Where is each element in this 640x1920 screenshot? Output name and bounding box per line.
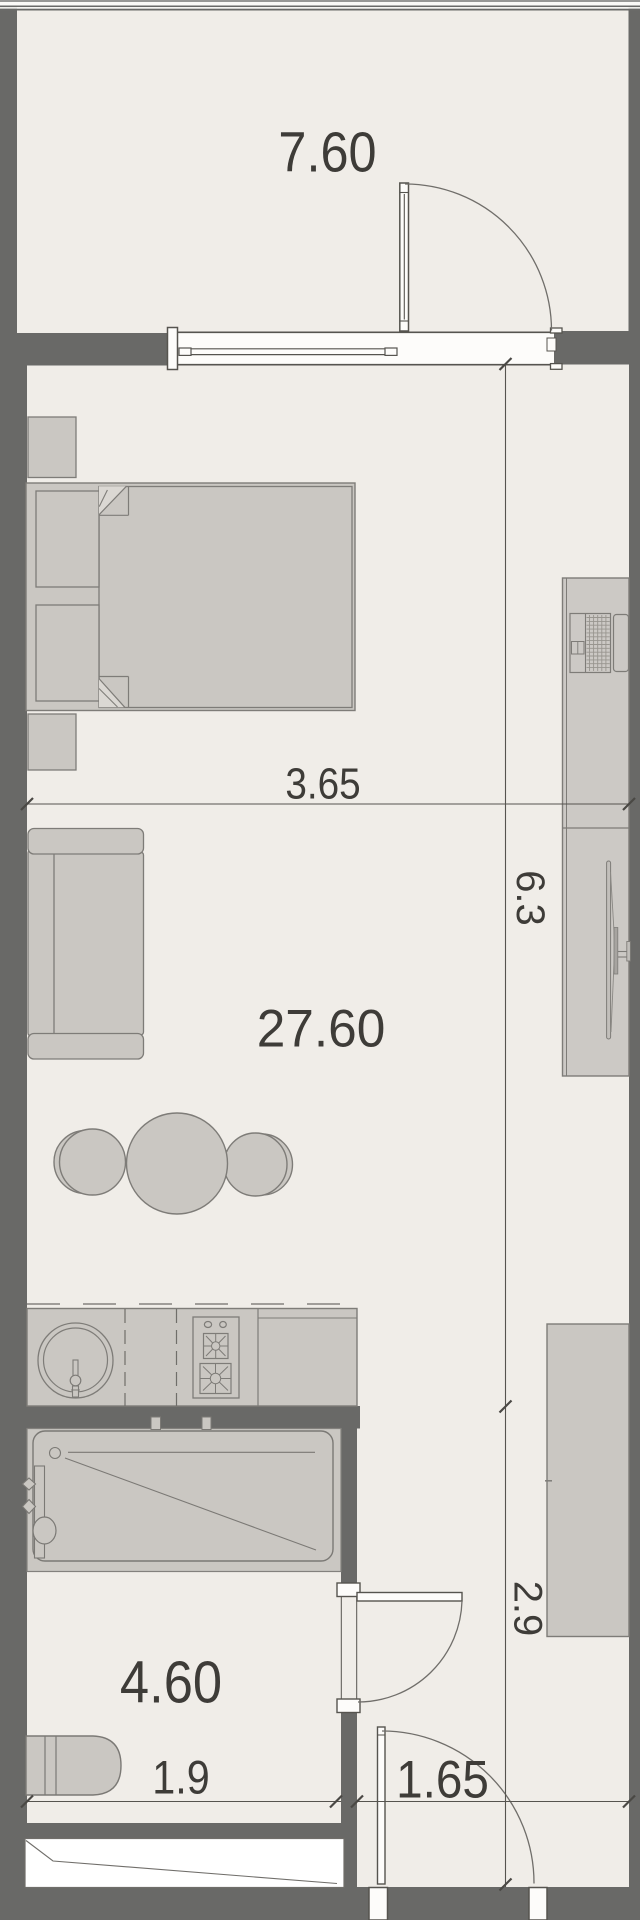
svg-text:1.9: 1.9 [152,1752,209,1804]
svg-text:4.60: 4.60 [120,1649,222,1716]
svg-text:6.3: 6.3 [508,870,552,926]
svg-text:2.9: 2.9 [506,1581,550,1637]
svg-text:3.65: 3.65 [285,758,360,808]
svg-text:1.65: 1.65 [396,1749,489,1809]
svg-text:27.60: 27.60 [257,1000,386,1059]
svg-text:7.60: 7.60 [278,121,376,185]
